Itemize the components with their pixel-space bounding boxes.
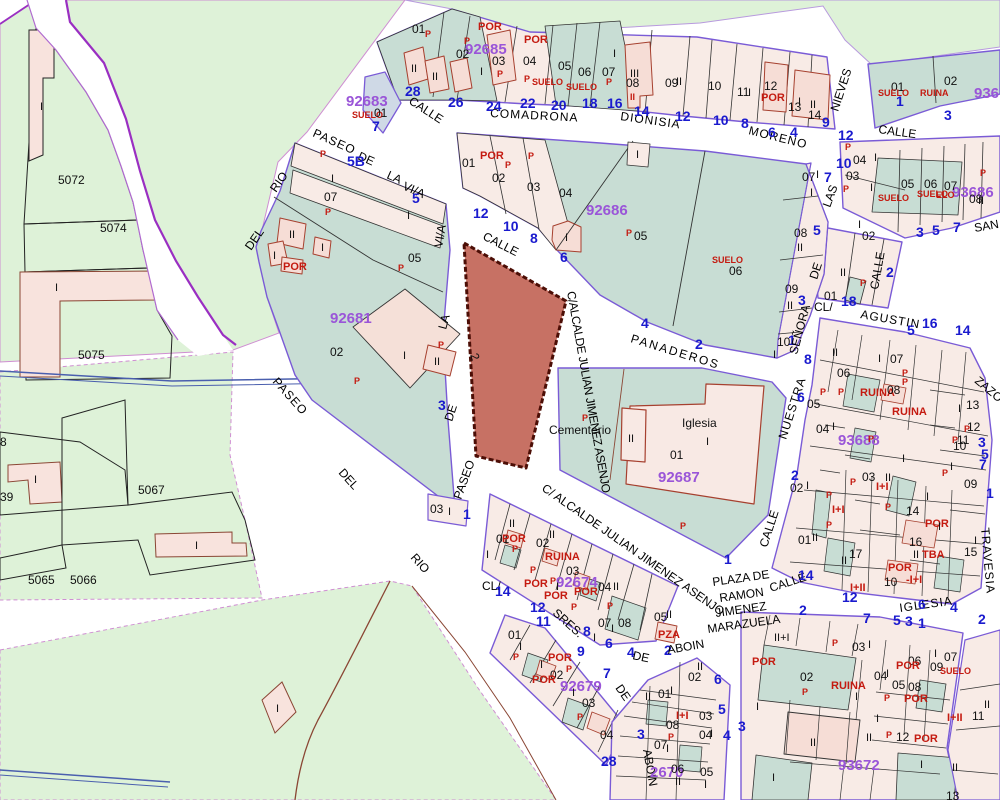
svg-text:I: I bbox=[902, 453, 905, 465]
svg-text:P: P bbox=[512, 544, 518, 554]
svg-text:01: 01 bbox=[798, 533, 812, 547]
svg-text:II: II bbox=[810, 99, 816, 111]
svg-text:6: 6 bbox=[560, 249, 568, 265]
svg-text:10: 10 bbox=[953, 439, 967, 453]
svg-text:P: P bbox=[680, 521, 686, 531]
svg-text:1: 1 bbox=[918, 615, 926, 631]
svg-text:8: 8 bbox=[741, 115, 749, 131]
svg-text:05: 05 bbox=[892, 678, 906, 692]
svg-text:ELO: ELO bbox=[936, 190, 955, 200]
svg-text:14: 14 bbox=[634, 103, 650, 119]
svg-text:12: 12 bbox=[675, 108, 691, 124]
svg-text:SUELO: SUELO bbox=[878, 193, 909, 203]
svg-text:RUINA: RUINA bbox=[892, 406, 927, 418]
svg-text:P: P bbox=[524, 74, 530, 84]
svg-text:14: 14 bbox=[906, 504, 920, 518]
svg-text:4: 4 bbox=[950, 599, 958, 615]
svg-text:P: P bbox=[850, 477, 856, 487]
svg-text:I: I bbox=[958, 403, 961, 415]
svg-text:14: 14 bbox=[798, 567, 814, 583]
svg-text:RUINA: RUINA bbox=[831, 680, 866, 692]
svg-text:3: 3 bbox=[438, 397, 446, 413]
svg-text:92681: 92681 bbox=[330, 310, 372, 327]
svg-text:14: 14 bbox=[955, 322, 971, 338]
svg-text:I: I bbox=[756, 701, 759, 713]
svg-text:P: P bbox=[860, 278, 866, 288]
svg-text:II: II bbox=[613, 581, 619, 593]
svg-text:5: 5 bbox=[907, 322, 915, 338]
svg-text:II: II bbox=[676, 76, 682, 88]
svg-text:11: 11 bbox=[972, 709, 985, 723]
svg-text:P: P bbox=[566, 664, 572, 674]
svg-text:07: 07 bbox=[890, 352, 904, 366]
svg-text:20: 20 bbox=[551, 97, 567, 113]
svg-text:P: P bbox=[826, 490, 832, 500]
svg-text:-I+I: -I+I bbox=[906, 574, 922, 586]
svg-text:I: I bbox=[670, 685, 673, 697]
svg-text:P: P bbox=[325, 207, 331, 217]
svg-text:03: 03 bbox=[852, 640, 866, 654]
svg-text:6: 6 bbox=[714, 671, 722, 687]
svg-text:10: 10 bbox=[777, 335, 791, 349]
svg-text:6: 6 bbox=[768, 124, 776, 140]
svg-text:I: I bbox=[710, 728, 713, 740]
svg-text:26: 26 bbox=[448, 94, 464, 110]
svg-text:02: 02 bbox=[944, 74, 958, 88]
svg-text:POR: POR bbox=[761, 92, 785, 104]
svg-text:II: II bbox=[913, 549, 919, 561]
svg-text:I: I bbox=[855, 691, 858, 703]
svg-text:II: II bbox=[675, 776, 681, 788]
svg-text:6: 6 bbox=[918, 596, 926, 612]
svg-text:P: P bbox=[528, 151, 534, 161]
svg-text:05: 05 bbox=[558, 59, 572, 73]
svg-text:08: 08 bbox=[887, 383, 901, 397]
svg-text:2: 2 bbox=[886, 264, 894, 280]
svg-text:P: P bbox=[820, 387, 826, 397]
svg-text:P: P bbox=[832, 638, 838, 648]
svg-text:936: 936 bbox=[974, 85, 999, 102]
svg-text:SUELO: SUELO bbox=[940, 666, 971, 676]
svg-text:I: I bbox=[565, 232, 568, 244]
svg-text:I: I bbox=[886, 668, 889, 680]
svg-text:8: 8 bbox=[0, 435, 7, 449]
svg-text:02: 02 bbox=[330, 345, 344, 359]
svg-text:05: 05 bbox=[901, 177, 915, 191]
svg-text:18: 18 bbox=[841, 293, 857, 309]
svg-text:09: 09 bbox=[964, 477, 978, 491]
svg-text:I+I: I+I bbox=[832, 504, 845, 516]
svg-text:P: P bbox=[464, 36, 470, 46]
svg-text:III: III bbox=[630, 68, 639, 80]
svg-text:15: 15 bbox=[964, 545, 978, 559]
svg-text:06: 06 bbox=[578, 65, 592, 79]
svg-text:05: 05 bbox=[700, 765, 714, 779]
svg-text:04: 04 bbox=[816, 422, 830, 436]
svg-text:01: 01 bbox=[670, 448, 684, 462]
svg-text:5: 5 bbox=[893, 612, 901, 628]
svg-text:08: 08 bbox=[908, 680, 922, 694]
svg-text:I: I bbox=[868, 639, 871, 651]
svg-text:POR: POR bbox=[914, 733, 938, 745]
svg-text:05: 05 bbox=[807, 397, 821, 411]
svg-text:P: P bbox=[843, 184, 849, 194]
svg-text:I: I bbox=[926, 491, 929, 503]
svg-text:9: 9 bbox=[577, 643, 585, 659]
svg-text:I: I bbox=[810, 187, 813, 199]
svg-text:II: II bbox=[984, 699, 990, 711]
svg-text:03: 03 bbox=[582, 696, 596, 710]
svg-text:05: 05 bbox=[634, 229, 648, 243]
svg-text:08: 08 bbox=[794, 226, 808, 240]
svg-text:Iglesia: Iglesia bbox=[682, 416, 717, 430]
svg-text:I: I bbox=[874, 152, 877, 164]
svg-text:16: 16 bbox=[909, 535, 923, 549]
svg-text:Cementerio: Cementerio bbox=[549, 423, 611, 437]
svg-text:12: 12 bbox=[473, 205, 489, 221]
svg-text:92687: 92687 bbox=[658, 469, 700, 486]
svg-text:I: I bbox=[798, 96, 801, 108]
svg-text:I: I bbox=[920, 759, 923, 771]
svg-text:8: 8 bbox=[583, 623, 591, 639]
svg-text:I: I bbox=[273, 250, 276, 262]
svg-text:03: 03 bbox=[862, 470, 876, 484]
svg-text:I+II: I+II bbox=[850, 582, 866, 594]
svg-text:02: 02 bbox=[800, 670, 814, 684]
svg-text:II: II bbox=[832, 347, 838, 359]
svg-text:P: P bbox=[885, 502, 891, 512]
svg-text:P: P bbox=[902, 377, 908, 387]
svg-text:P: P bbox=[582, 413, 588, 423]
svg-text:04: 04 bbox=[853, 153, 867, 167]
svg-text:1: 1 bbox=[463, 506, 471, 522]
svg-text:POR: POR bbox=[904, 693, 928, 705]
svg-text:04: 04 bbox=[559, 186, 573, 200]
svg-text:06: 06 bbox=[729, 264, 743, 278]
svg-text:P: P bbox=[607, 601, 613, 611]
svg-text:5: 5 bbox=[932, 222, 940, 238]
svg-text:92686: 92686 bbox=[586, 202, 628, 219]
svg-text:2: 2 bbox=[799, 602, 807, 618]
svg-text:P: P bbox=[425, 29, 431, 39]
svg-text:II: II bbox=[952, 762, 958, 774]
svg-text:93672: 93672 bbox=[838, 757, 880, 774]
svg-text:TBA: TBA bbox=[922, 549, 945, 561]
svg-text:03: 03 bbox=[527, 180, 541, 194]
svg-text:3: 3 bbox=[916, 224, 924, 240]
svg-text:01: 01 bbox=[824, 289, 838, 303]
svg-text:I: I bbox=[55, 282, 58, 294]
svg-text:12: 12 bbox=[764, 79, 778, 93]
svg-text:02: 02 bbox=[492, 171, 506, 185]
svg-text:10: 10 bbox=[884, 575, 898, 589]
svg-text:5072: 5072 bbox=[58, 173, 85, 187]
svg-text:8: 8 bbox=[804, 351, 812, 367]
svg-text:P: P bbox=[354, 376, 360, 386]
svg-text:01: 01 bbox=[508, 628, 522, 642]
svg-text:P: P bbox=[606, 77, 612, 87]
svg-text:POR: POR bbox=[888, 562, 912, 574]
svg-text:POR: POR bbox=[480, 150, 504, 162]
svg-text:POR: POR bbox=[574, 586, 598, 598]
svg-text:01: 01 bbox=[412, 22, 426, 36]
svg-text:I: I bbox=[540, 659, 543, 671]
svg-text:I: I bbox=[40, 101, 43, 113]
svg-text:II: II bbox=[787, 300, 793, 312]
svg-text:16: 16 bbox=[922, 315, 938, 331]
svg-text:10: 10 bbox=[713, 112, 729, 128]
svg-text:01: 01 bbox=[462, 156, 476, 170]
svg-text:10: 10 bbox=[708, 79, 722, 93]
svg-text:POR: POR bbox=[925, 518, 949, 530]
svg-text:39: 39 bbox=[0, 490, 14, 504]
svg-text:02: 02 bbox=[456, 47, 470, 61]
svg-text:I: I bbox=[974, 535, 977, 547]
svg-text:I: I bbox=[832, 421, 835, 433]
svg-text:I: I bbox=[806, 480, 809, 492]
svg-text:I: I bbox=[950, 461, 953, 473]
svg-text:POR: POR bbox=[524, 578, 548, 590]
svg-text:I: I bbox=[934, 648, 937, 660]
svg-text:II: II bbox=[411, 63, 417, 75]
svg-text:P: P bbox=[550, 576, 556, 586]
svg-text:22: 22 bbox=[520, 95, 536, 111]
svg-text:04: 04 bbox=[598, 580, 612, 594]
svg-text:08: 08 bbox=[666, 718, 680, 732]
svg-text:PZA: PZA bbox=[658, 629, 680, 641]
svg-text:II: II bbox=[630, 92, 635, 102]
svg-text:8: 8 bbox=[530, 230, 538, 246]
svg-text:II: II bbox=[797, 242, 803, 254]
svg-text:3: 3 bbox=[905, 613, 913, 629]
svg-text:I: I bbox=[613, 48, 616, 60]
svg-text:03: 03 bbox=[566, 564, 580, 578]
svg-text:06: 06 bbox=[671, 762, 685, 776]
svg-text:10: 10 bbox=[503, 218, 519, 234]
svg-text:03: 03 bbox=[699, 709, 713, 723]
svg-text:4: 4 bbox=[790, 124, 798, 140]
svg-text:I+II: I+II bbox=[947, 712, 963, 724]
svg-text:7: 7 bbox=[603, 665, 611, 681]
svg-text:5B: 5B bbox=[347, 153, 365, 169]
svg-text:P: P bbox=[668, 732, 674, 742]
svg-text:07: 07 bbox=[598, 616, 612, 630]
svg-text:I: I bbox=[938, 521, 941, 533]
svg-text:II: II bbox=[289, 229, 295, 241]
svg-text:POR: POR bbox=[478, 21, 502, 33]
svg-text:7: 7 bbox=[953, 219, 961, 235]
svg-text:5065: 5065 bbox=[28, 573, 55, 587]
svg-text:13: 13 bbox=[946, 789, 960, 800]
svg-text:07: 07 bbox=[944, 650, 958, 664]
svg-text:POR: POR bbox=[752, 656, 776, 668]
svg-text:13: 13 bbox=[966, 398, 980, 412]
svg-text:P: P bbox=[497, 69, 503, 79]
svg-text:I: I bbox=[704, 779, 707, 791]
svg-text:03: 03 bbox=[430, 502, 444, 516]
svg-text:P: P bbox=[320, 149, 326, 159]
svg-text:I: I bbox=[34, 474, 37, 486]
svg-text:6: 6 bbox=[605, 635, 613, 651]
svg-text:09: 09 bbox=[785, 282, 799, 296]
svg-text:I: I bbox=[276, 703, 279, 715]
svg-text:92679: 92679 bbox=[560, 678, 602, 695]
svg-text:12: 12 bbox=[838, 127, 854, 143]
svg-text:03: 03 bbox=[846, 169, 860, 183]
svg-text:3: 3 bbox=[944, 107, 952, 123]
svg-text:P: P bbox=[886, 730, 892, 740]
svg-text:II: II bbox=[840, 267, 846, 279]
svg-text:P: P bbox=[530, 565, 536, 575]
svg-text:P: P bbox=[942, 468, 948, 478]
svg-text:I: I bbox=[816, 169, 819, 181]
svg-text:P: P bbox=[980, 168, 986, 178]
svg-text:5075: 5075 bbox=[78, 348, 105, 362]
svg-text:I: I bbox=[448, 506, 451, 518]
svg-text:3: 3 bbox=[637, 726, 645, 742]
svg-text:P: P bbox=[505, 160, 511, 170]
svg-text:I: I bbox=[636, 149, 639, 161]
svg-text:P: P bbox=[826, 520, 832, 530]
svg-text:5067: 5067 bbox=[138, 483, 165, 497]
svg-text:4: 4 bbox=[723, 727, 731, 743]
svg-text:02: 02 bbox=[536, 536, 550, 550]
svg-text:07: 07 bbox=[324, 190, 338, 204]
svg-text:04: 04 bbox=[600, 728, 614, 742]
svg-text:P: P bbox=[577, 712, 583, 722]
svg-text:17: 17 bbox=[849, 547, 863, 561]
svg-text:16: 16 bbox=[607, 95, 623, 111]
svg-text:I: I bbox=[706, 436, 709, 448]
svg-text:03: 03 bbox=[492, 54, 506, 68]
svg-text:II: II bbox=[666, 609, 672, 621]
svg-text:II: II bbox=[978, 195, 984, 207]
svg-text:P: P bbox=[868, 434, 874, 444]
svg-text:7: 7 bbox=[979, 456, 987, 472]
svg-text:I: I bbox=[486, 549, 489, 561]
svg-text:II: II bbox=[866, 732, 872, 744]
svg-text:P: P bbox=[438, 340, 444, 350]
svg-text:SUELO: SUELO bbox=[532, 77, 563, 87]
svg-text:I: I bbox=[773, 349, 776, 361]
svg-text:POR: POR bbox=[283, 261, 307, 273]
svg-text:P: P bbox=[884, 693, 890, 703]
svg-text:6: 6 bbox=[797, 389, 805, 405]
svg-text:I: I bbox=[858, 219, 861, 231]
svg-text:18: 18 bbox=[582, 95, 598, 111]
svg-text:I: I bbox=[666, 743, 669, 755]
svg-text:P: P bbox=[571, 602, 577, 612]
svg-text:II: II bbox=[645, 691, 651, 703]
svg-text:I: I bbox=[876, 713, 879, 725]
svg-text:II: II bbox=[697, 661, 703, 673]
svg-text:RUINA: RUINA bbox=[545, 551, 580, 563]
svg-text:5: 5 bbox=[412, 190, 420, 206]
svg-text:2: 2 bbox=[978, 611, 986, 627]
svg-text:7: 7 bbox=[824, 169, 832, 185]
svg-text:POR: POR bbox=[532, 674, 556, 686]
svg-text:I: I bbox=[593, 632, 596, 644]
svg-text:2: 2 bbox=[695, 336, 703, 352]
svg-text:I: I bbox=[195, 540, 198, 552]
svg-text:28: 28 bbox=[405, 83, 421, 99]
svg-text:08: 08 bbox=[618, 616, 632, 630]
svg-text:5: 5 bbox=[718, 701, 726, 717]
svg-text:1: 1 bbox=[724, 551, 732, 567]
svg-text:I: I bbox=[331, 173, 334, 185]
svg-text:3: 3 bbox=[738, 718, 746, 734]
svg-text:05: 05 bbox=[408, 251, 422, 265]
svg-text:12: 12 bbox=[896, 730, 910, 744]
svg-text:5066: 5066 bbox=[70, 573, 97, 587]
svg-text:07: 07 bbox=[802, 170, 816, 184]
svg-text:RUINA: RUINA bbox=[920, 88, 949, 98]
svg-text:I: I bbox=[772, 772, 775, 784]
svg-text:SUELO: SUELO bbox=[566, 82, 597, 92]
svg-text:4: 4 bbox=[641, 315, 649, 331]
svg-text:POR: POR bbox=[524, 34, 548, 46]
svg-text:I: I bbox=[321, 242, 324, 254]
svg-text:SUELO: SUELO bbox=[712, 255, 743, 265]
svg-text:28: 28 bbox=[601, 753, 617, 769]
svg-text:P: P bbox=[398, 263, 404, 273]
svg-text:7: 7 bbox=[863, 610, 871, 626]
svg-text:02: 02 bbox=[790, 481, 804, 495]
svg-text:II: II bbox=[812, 532, 818, 544]
svg-text:P: P bbox=[802, 687, 808, 697]
svg-text:POR: POR bbox=[896, 660, 920, 672]
svg-text:I: I bbox=[556, 581, 559, 593]
svg-text:06: 06 bbox=[837, 366, 851, 380]
svg-text:1: 1 bbox=[986, 485, 994, 501]
svg-text:SUELO: SUELO bbox=[878, 88, 909, 98]
svg-text:11: 11 bbox=[536, 613, 551, 629]
svg-text:II: II bbox=[810, 737, 816, 749]
svg-text:POR: POR bbox=[548, 652, 572, 664]
svg-text:14: 14 bbox=[495, 583, 511, 599]
svg-text:II: II bbox=[509, 518, 515, 530]
svg-text:I: I bbox=[572, 687, 575, 699]
svg-text:II: II bbox=[432, 71, 438, 83]
svg-text:24: 24 bbox=[486, 98, 502, 114]
svg-text:II: II bbox=[628, 433, 634, 445]
svg-text:II: II bbox=[549, 529, 555, 541]
svg-text:P: P bbox=[513, 652, 519, 662]
svg-text:I: I bbox=[870, 182, 873, 194]
svg-text:I: I bbox=[878, 353, 881, 365]
svg-text:I: I bbox=[611, 623, 614, 635]
svg-text:II: II bbox=[434, 356, 440, 368]
svg-text:P: P bbox=[838, 387, 844, 397]
svg-text:02: 02 bbox=[862, 229, 876, 243]
svg-text:I: I bbox=[748, 87, 751, 99]
svg-text:I: I bbox=[407, 210, 410, 222]
svg-text:7: 7 bbox=[372, 118, 380, 134]
svg-text:9: 9 bbox=[822, 114, 830, 130]
svg-text:I+I: I+I bbox=[876, 481, 889, 493]
svg-text:P: P bbox=[845, 142, 851, 152]
svg-text:5074: 5074 bbox=[100, 221, 127, 235]
svg-text:II+I: II+I bbox=[774, 632, 790, 644]
svg-text:5: 5 bbox=[813, 222, 821, 238]
svg-text:P: P bbox=[626, 228, 632, 238]
svg-text:I: I bbox=[480, 66, 483, 78]
svg-text:I: I bbox=[403, 350, 406, 362]
svg-text:I: I bbox=[519, 641, 522, 653]
svg-text:II: II bbox=[841, 555, 847, 567]
svg-text:04: 04 bbox=[523, 54, 537, 68]
